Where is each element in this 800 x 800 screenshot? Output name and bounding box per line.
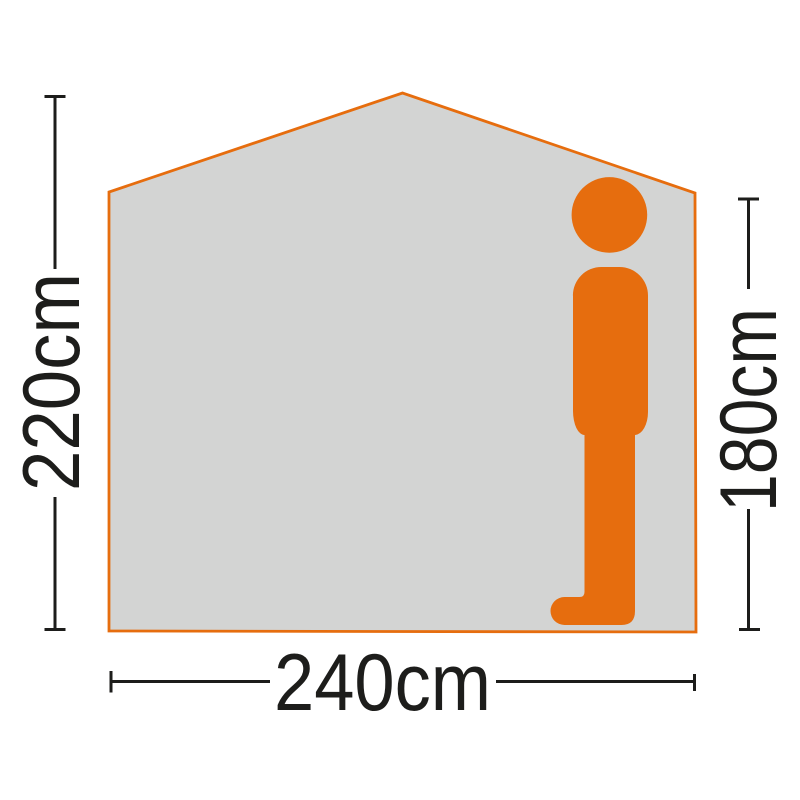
svg-text:240cm: 240cm — [274, 638, 491, 728]
svg-text:180cm: 180cm — [704, 308, 794, 512]
svg-text:220cm: 220cm — [7, 273, 97, 491]
